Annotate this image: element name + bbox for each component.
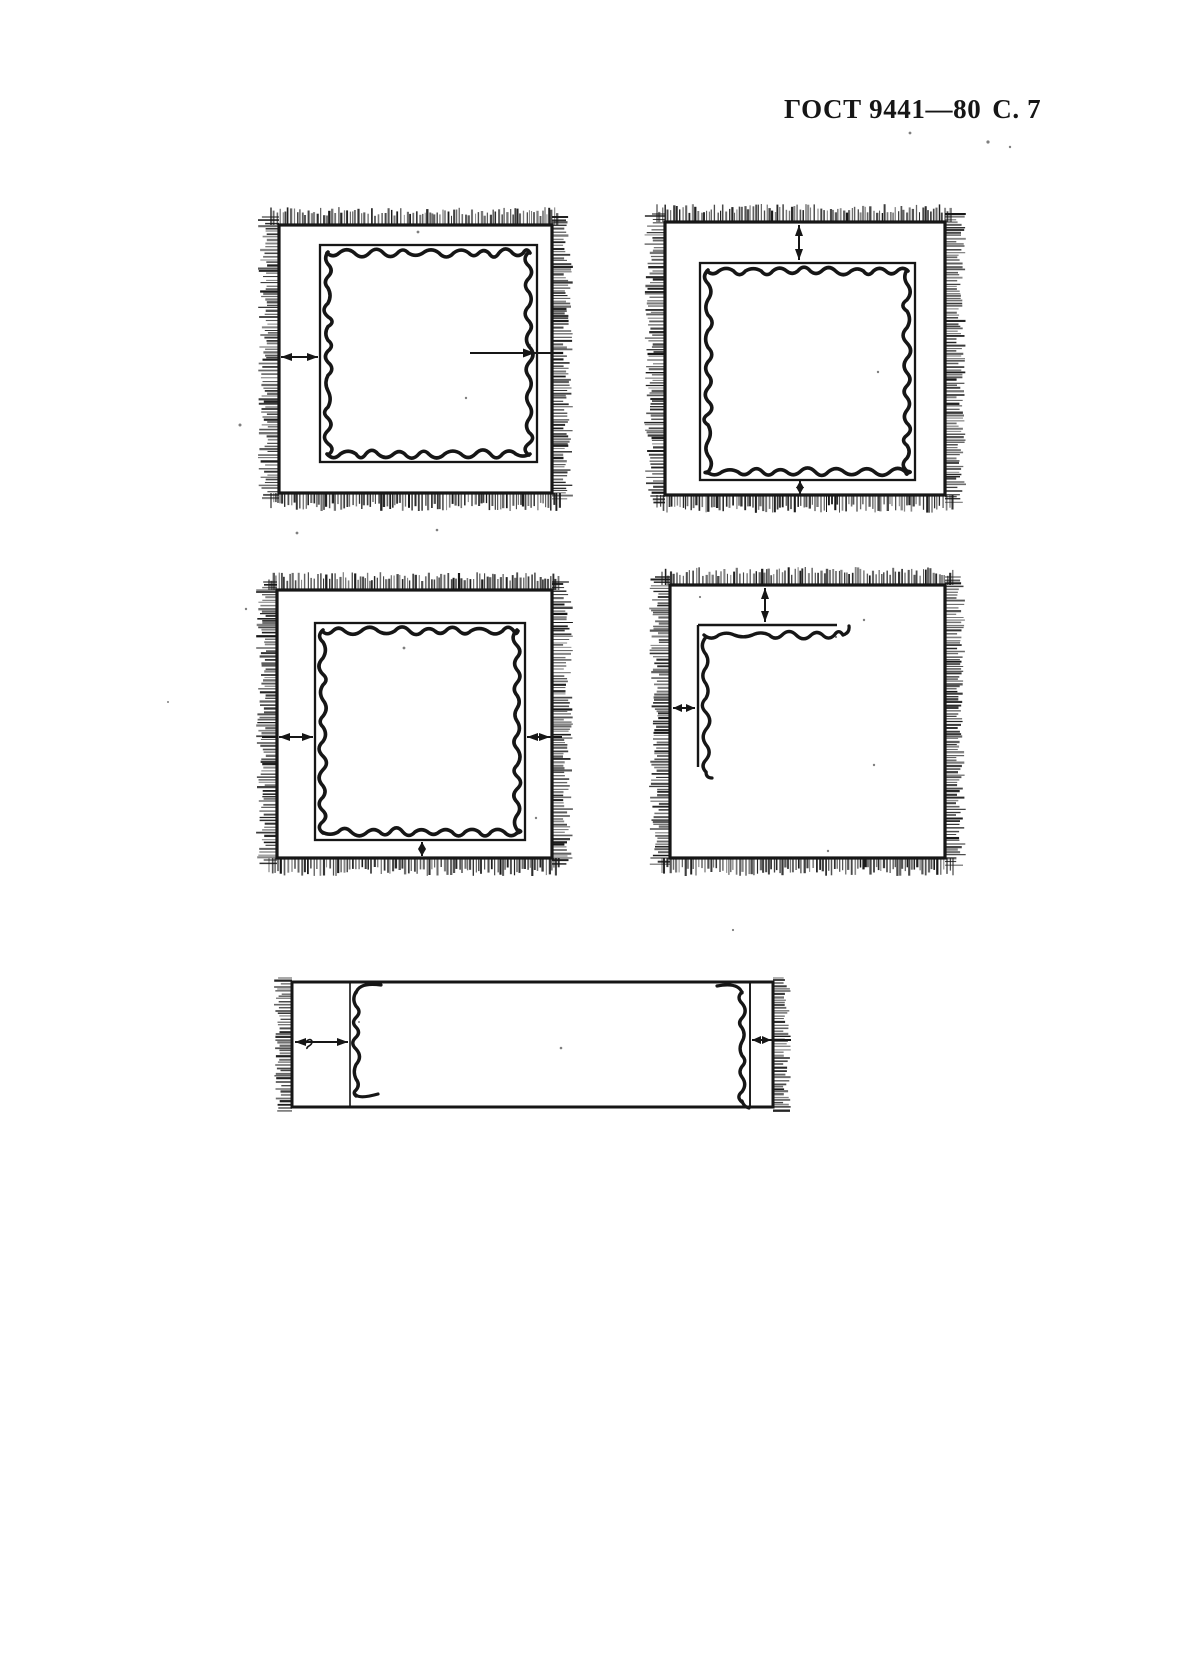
document-page: ГОСТ 9441—80С. 7 [0,0,1187,1679]
figure-fringed-square-three-arrows [256,572,573,876]
figure-fringed-strip [274,978,791,1111]
figure-fringed-square-corner-stitch [649,567,966,876]
figure-fringed-square-vertical-arrows [644,204,966,513]
figures-canvas [0,0,1187,1679]
figure-fringed-square-side-arrows [258,207,573,511]
